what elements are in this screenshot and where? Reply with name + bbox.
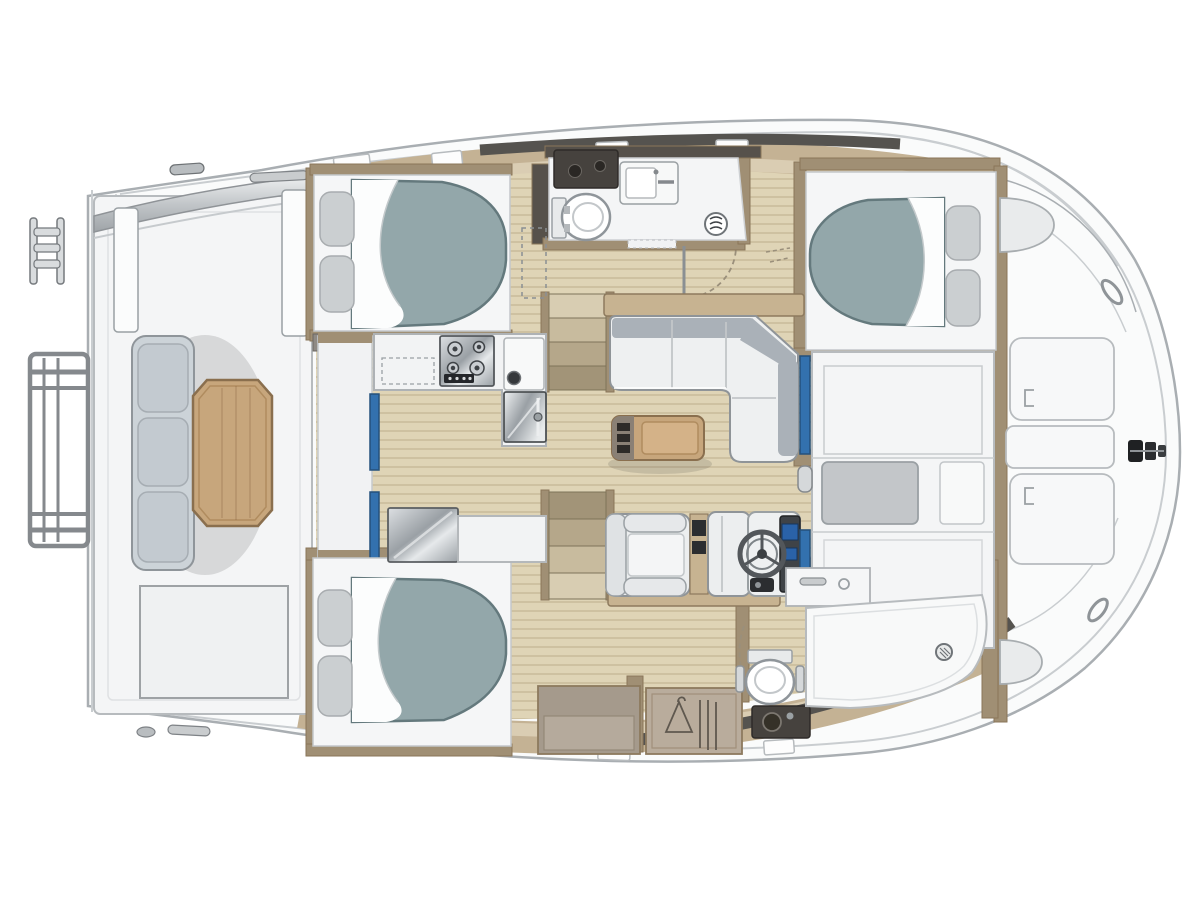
cabinet-shelf (544, 716, 634, 750)
toilet-hinge-2 (564, 224, 570, 232)
saloon-aft-wall (318, 330, 379, 563)
companion-seat (708, 512, 750, 596)
wheel-hub (757, 549, 767, 559)
table-top (193, 380, 272, 526)
head-vanity-dark (554, 150, 618, 188)
floor-plan-canvas (0, 0, 1200, 900)
bench-cushion-3 (138, 492, 188, 562)
forward-cushion-gray (822, 462, 918, 524)
port-aft-cabin-bed (314, 175, 510, 331)
helm-station (606, 512, 800, 606)
sofa-back-band-top (612, 318, 754, 338)
vanity-sink (763, 713, 781, 731)
sofa-back-shelf (604, 294, 804, 316)
stairs-to-port-hull (549, 294, 606, 390)
wall-bed-tl-top (310, 164, 512, 175)
armchair-seat (628, 534, 684, 576)
sofa-back-band-right (778, 360, 798, 456)
aft-cockpit (94, 163, 312, 737)
armchair-arm-bottom (624, 578, 686, 596)
cockpit-handle-1 (170, 163, 205, 175)
pillow-1 (320, 192, 354, 246)
throttle-unit (750, 578, 774, 592)
forward-cushion-white (940, 462, 984, 524)
steering-wheel (740, 532, 784, 576)
coffee-table (608, 416, 712, 474)
starboard-head-vanity (752, 706, 810, 738)
galley-counter-aft (458, 516, 546, 562)
corridor-cabinet (538, 686, 640, 754)
towel-bar-right (796, 666, 804, 692)
bench-cushion-1 (138, 344, 188, 412)
sliding-door-forward-pane-1 (800, 356, 810, 454)
stern-platform (30, 218, 88, 546)
vanity-knob-2 (595, 161, 606, 172)
galley-sink-drain (508, 372, 521, 385)
aft-wall-panel (318, 336, 372, 562)
sliding-door-aft-pane-1 (370, 394, 379, 470)
stairs-to-starboard-hull (549, 492, 606, 599)
bench-cushion-2 (138, 418, 188, 486)
console-panel-1 (692, 520, 706, 536)
swim-ladder-upper (30, 218, 64, 284)
pillow-2 (320, 256, 354, 312)
pillow-2 (946, 270, 980, 326)
cockpit-handle-3 (168, 725, 210, 736)
deck-panel-2 (1006, 426, 1114, 468)
head-sink-tap (654, 170, 659, 175)
hanging-wardrobe (646, 688, 742, 754)
shower-sink-faucet (800, 578, 826, 585)
cockpit-table (193, 380, 272, 526)
coffee-table-hinges (617, 423, 630, 453)
toilet-hinge-1 (564, 206, 570, 214)
starboard-aft-cabin-bed (313, 558, 511, 746)
head-sink-unit (620, 162, 678, 204)
nav-screen-1 (782, 524, 798, 540)
cockpit-latch (137, 727, 155, 737)
pillow-2 (318, 656, 352, 716)
aft-wall-top-block (318, 330, 372, 343)
swim-ladder-lower (30, 354, 88, 546)
armchair-back (606, 514, 626, 596)
deck-panel-1 (1010, 338, 1114, 420)
cockpit-floor-panel (140, 586, 288, 698)
head-toilet (552, 194, 610, 240)
head-threshold (628, 240, 676, 248)
wall-bed-tr-left (794, 162, 806, 358)
cockpit-post-right (282, 190, 308, 336)
cockpit-post-left (114, 208, 138, 332)
throttle-knob (755, 582, 761, 588)
console-panel-2 (692, 541, 706, 554)
oven-knob (534, 413, 542, 421)
pillow-1 (946, 206, 980, 260)
coffee-table-leaf (642, 422, 698, 454)
catamaran-floor-plan (0, 0, 1200, 900)
pillow-1 (318, 590, 352, 646)
port-forward-cabin-bed (806, 172, 996, 350)
sliding-door-aft-pane-2 (370, 492, 379, 560)
bench-seat (132, 336, 194, 570)
vanity-tap (787, 713, 794, 720)
shower-sink-counter (786, 568, 870, 606)
wall-bed-tr-top (800, 158, 1000, 170)
head-sink-basin (626, 168, 656, 198)
armchair-arm-top (624, 514, 686, 532)
vanity-knob-1 (569, 165, 582, 178)
towel-bar-left (736, 666, 744, 692)
helm-armchair (606, 514, 690, 596)
door-handle-chrome (798, 466, 812, 492)
